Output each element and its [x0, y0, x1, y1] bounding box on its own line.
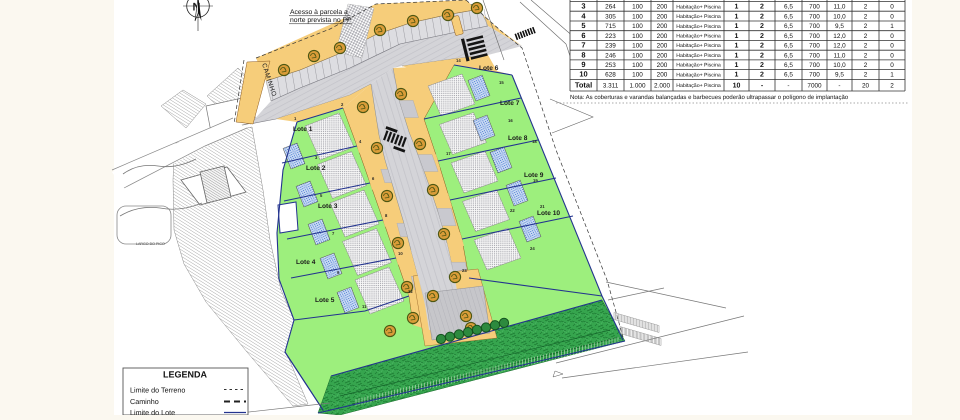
svg-text:223: 223: [605, 33, 616, 40]
svg-text:18: 18: [532, 139, 537, 144]
svg-text:Habitação+ Piscina: Habitação+ Piscina: [676, 83, 721, 89]
svg-text:Habitação+ Piscina: Habitação+ Piscina: [676, 53, 721, 59]
svg-text:-: -: [787, 82, 789, 89]
svg-text:24: 24: [530, 246, 535, 251]
svg-text:Lote 6: Lote 6: [479, 65, 499, 72]
svg-text:2: 2: [864, 33, 868, 40]
svg-text:8: 8: [581, 50, 585, 59]
svg-text:2: 2: [864, 23, 868, 30]
svg-text:0: 0: [890, 13, 894, 20]
svg-text:Lote 2: Lote 2: [306, 165, 326, 172]
svg-text:Habitação+ Piscina: Habitação+ Piscina: [676, 33, 721, 39]
svg-text:Habitação+ Piscina: Habitação+ Piscina: [676, 24, 721, 30]
svg-text:200: 200: [657, 4, 668, 11]
svg-text:Limite do Lote: Limite do Lote: [130, 408, 175, 415]
svg-text:Habitação+ Piscina: Habitação+ Piscina: [676, 43, 721, 49]
svg-text:100: 100: [632, 43, 643, 50]
svg-text:1.000: 1.000: [630, 82, 646, 89]
svg-text:700: 700: [809, 72, 820, 79]
svg-text:16: 16: [508, 118, 513, 123]
svg-text:7000: 7000: [807, 82, 822, 89]
svg-text:23: 23: [462, 268, 467, 273]
svg-text:-: -: [838, 82, 840, 89]
svg-text:Habitação+ Piscina: Habitação+ Piscina: [676, 4, 721, 10]
svg-text:2: 2: [760, 52, 764, 59]
svg-text:2: 2: [864, 72, 868, 79]
svg-text:11,0: 11,0: [834, 52, 846, 59]
svg-text:100: 100: [632, 52, 643, 59]
svg-text:7: 7: [581, 41, 585, 50]
svg-text:Lote 10: Lote 10: [537, 210, 560, 217]
svg-text:100: 100: [632, 62, 643, 69]
svg-text:Lote 3: Lote 3: [318, 203, 338, 210]
svg-text:305: 305: [605, 13, 616, 20]
svg-text:15: 15: [499, 80, 504, 85]
svg-text:2: 2: [760, 33, 764, 40]
svg-text:0: 0: [890, 52, 894, 59]
svg-text:700: 700: [809, 33, 820, 40]
svg-text:Acesso à parcela a: Acesso à parcela a: [290, 9, 348, 16]
svg-text:Lote 7: Lote 7: [500, 100, 520, 107]
svg-text:1: 1: [735, 52, 739, 59]
svg-text:19: 19: [533, 178, 538, 183]
svg-text:1: 1: [735, 13, 739, 20]
svg-text:1: 1: [890, 23, 894, 30]
svg-text:2: 2: [760, 72, 764, 79]
svg-text:200: 200: [657, 23, 668, 30]
svg-text:3.311: 3.311: [603, 82, 619, 89]
svg-text:1: 1: [735, 43, 739, 50]
svg-text:Lote 4: Lote 4: [296, 259, 316, 266]
svg-text:2: 2: [864, 43, 868, 50]
svg-text:6,5: 6,5: [784, 33, 793, 40]
svg-text:17: 17: [446, 151, 451, 156]
svg-text:6: 6: [581, 31, 585, 40]
svg-text:2: 2: [760, 43, 764, 50]
svg-text:2: 2: [864, 13, 868, 20]
svg-text:norte prevista no PP: norte prevista no PP: [290, 17, 352, 24]
svg-text:2: 2: [760, 4, 764, 11]
svg-text:6,5: 6,5: [784, 4, 793, 11]
svg-text:2: 2: [864, 62, 868, 69]
svg-text:22: 22: [510, 208, 515, 213]
svg-text:11,0: 11,0: [834, 4, 846, 11]
svg-text:1: 1: [735, 62, 739, 69]
svg-text:715: 715: [605, 23, 616, 30]
svg-text:0: 0: [890, 33, 894, 40]
svg-text:10: 10: [398, 251, 403, 256]
svg-text:20: 20: [862, 82, 870, 89]
svg-text:253: 253: [605, 62, 616, 69]
svg-text:Lote 8: Lote 8: [508, 135, 528, 142]
svg-text:Habitação+ Piscina: Habitação+ Piscina: [676, 63, 721, 69]
svg-text:700: 700: [809, 13, 820, 20]
svg-text:2: 2: [864, 52, 868, 59]
svg-text:700: 700: [809, 43, 820, 50]
svg-text:Caminho: Caminho: [130, 397, 159, 406]
svg-text:200: 200: [657, 72, 668, 79]
svg-text:12: 12: [408, 289, 413, 294]
svg-text:1: 1: [735, 33, 739, 40]
svg-text:100: 100: [632, 23, 643, 30]
svg-text:0: 0: [890, 43, 894, 50]
svg-text:Habitação+ Piscina: Habitação+ Piscina: [676, 14, 721, 20]
svg-text:2: 2: [760, 62, 764, 69]
svg-text:700: 700: [809, 4, 820, 11]
svg-text:100: 100: [632, 4, 643, 11]
svg-text:239: 239: [605, 43, 616, 50]
svg-text:2: 2: [864, 4, 868, 11]
svg-text:6,5: 6,5: [784, 13, 793, 20]
svg-text:6,5: 6,5: [784, 62, 793, 69]
svg-text:Nota: As coberturas e varandas: Nota: As coberturas e varandas balançada…: [570, 94, 849, 101]
svg-text:Habitação+ Piscina: Habitação+ Piscina: [676, 72, 721, 78]
svg-text:1: 1: [735, 4, 739, 11]
svg-text:200: 200: [657, 33, 668, 40]
svg-text:9,5: 9,5: [835, 23, 844, 30]
svg-text:2: 2: [760, 23, 764, 30]
svg-text:9: 9: [581, 60, 585, 69]
svg-text:2.000: 2.000: [654, 82, 670, 89]
svg-text:1: 1: [735, 23, 739, 30]
svg-text:Lote 5: Lote 5: [315, 297, 335, 304]
svg-text:264: 264: [605, 4, 616, 11]
svg-text:12,0: 12,0: [833, 33, 846, 40]
svg-text:1: 1: [735, 72, 739, 79]
svg-text:700: 700: [809, 23, 820, 30]
svg-text:100: 100: [632, 33, 643, 40]
svg-text:21: 21: [540, 204, 545, 209]
svg-text:Lote 1: Lote 1: [293, 126, 313, 133]
svg-text:11: 11: [362, 304, 367, 309]
svg-text:6,5: 6,5: [784, 72, 793, 79]
svg-text:200: 200: [657, 62, 668, 69]
svg-text:628: 628: [605, 72, 616, 79]
svg-text:10,0: 10,0: [833, 13, 846, 20]
svg-text:200: 200: [657, 13, 668, 20]
svg-text:5: 5: [581, 21, 585, 30]
svg-text:200: 200: [657, 52, 668, 59]
svg-text:2: 2: [890, 82, 894, 89]
svg-text:12,0: 12,0: [833, 43, 846, 50]
svg-text:0: 0: [890, 62, 894, 69]
svg-text:10: 10: [579, 70, 587, 79]
svg-text:200: 200: [657, 43, 668, 50]
svg-text:LARGO DO PICO: LARGO DO PICO: [136, 242, 165, 246]
svg-text:Total: Total: [575, 80, 592, 89]
svg-text:LEGENDA: LEGENDA: [163, 370, 208, 380]
svg-text:3: 3: [581, 2, 585, 11]
svg-text:100: 100: [632, 13, 643, 20]
svg-text:2: 2: [760, 13, 764, 20]
svg-text:0: 0: [890, 4, 894, 11]
svg-text:9,5: 9,5: [835, 72, 844, 79]
svg-text:700: 700: [809, 52, 820, 59]
svg-text:14: 14: [456, 58, 461, 63]
svg-text:1: 1: [890, 72, 894, 79]
svg-text:700: 700: [809, 62, 820, 69]
svg-text:6,5: 6,5: [784, 23, 793, 30]
svg-text:246: 246: [605, 52, 616, 59]
svg-text:10,0: 10,0: [833, 62, 846, 69]
svg-text:6,5: 6,5: [784, 43, 793, 50]
svg-text:100: 100: [632, 72, 643, 79]
svg-text:6,5: 6,5: [784, 52, 793, 59]
svg-text:Limite do Terreno: Limite do Terreno: [130, 386, 185, 395]
svg-text:10: 10: [733, 82, 741, 89]
